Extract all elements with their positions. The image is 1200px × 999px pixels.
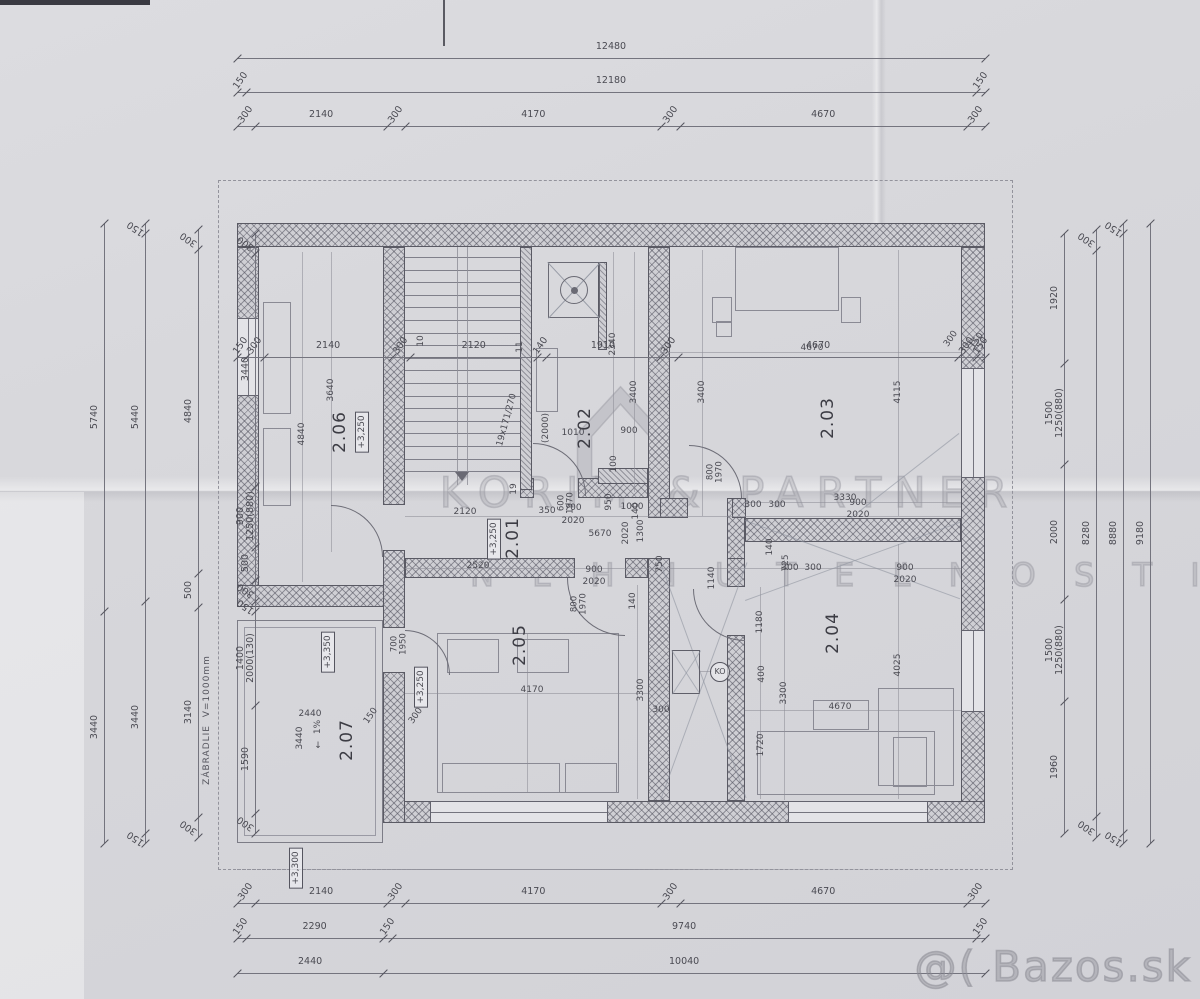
stair-tread (405, 370, 520, 371)
dim-label: 3440 (131, 705, 141, 729)
wall-stair-east (520, 247, 532, 490)
dim-label: 2140 (309, 887, 333, 897)
wall-202-inner-h (598, 468, 648, 484)
stair-tread (405, 270, 520, 271)
dim-label: 4170 (521, 887, 545, 897)
dim-label: 2120 (462, 341, 486, 351)
dim-label: 2140 (316, 341, 340, 351)
stair-tread (405, 396, 520, 397)
dim-label: 5440 (131, 405, 141, 429)
window-bottom-1 (430, 801, 608, 823)
label-3400: 3400 (697, 381, 707, 404)
label-2.03: 2.03 (818, 397, 838, 439)
corridor-dim-line-1 (405, 516, 961, 517)
label-1720: 1720 (756, 734, 766, 757)
stair-direction-arrow (455, 472, 469, 481)
label-4115: 4115 (893, 381, 903, 404)
label-4025: 4025 (893, 654, 903, 677)
label-1180: 1180 (755, 611, 765, 634)
vent-fan-hub (571, 287, 578, 294)
label-19: 19 (509, 483, 519, 494)
dim-line-202v (613, 252, 614, 460)
dim-label: 150 (232, 71, 251, 92)
dim-label: 900 1250(880) (236, 491, 256, 541)
label-900: 900 (585, 565, 602, 575)
label-+3300: +3,300 (289, 847, 303, 888)
label-+3250: +3,250 (414, 666, 428, 707)
label-100: 100 (609, 455, 619, 472)
label-900: 900 (849, 498, 866, 508)
label-ZBRADLIEV1000mm: ZÁBRADLIE V=1000mm (202, 655, 212, 785)
paper-pale-left (0, 492, 84, 999)
dim-line-202v2 (634, 252, 635, 492)
label-4670: 4670 (801, 343, 824, 353)
label-11: 11 (515, 341, 525, 352)
label-950: 950 (604, 493, 614, 510)
label-4840: 4840 (297, 423, 307, 446)
watermark-site: @( Bazos.sk (915, 942, 1192, 991)
dim-label: 10040 (669, 957, 699, 967)
fold-mark (443, 0, 445, 46)
label-3300: 3300 (636, 679, 646, 702)
nightstand-203-left (712, 297, 732, 323)
wall-exterior-top (237, 223, 985, 247)
label-8001970: 800 1970 (707, 461, 726, 483)
label-KO: KO (710, 662, 730, 682)
wall-a-mid (383, 550, 405, 628)
stair-tread (405, 282, 520, 283)
dim-label: 3140 (184, 700, 194, 724)
wall-a-lower (383, 672, 405, 823)
label-700: 700 (564, 503, 581, 513)
window-right-2 (961, 630, 985, 712)
bed-203 (735, 247, 839, 311)
label-900: 900 (896, 563, 913, 573)
dim-label: 4840 (184, 399, 194, 423)
label-2.05: 2.05 (510, 624, 530, 666)
label-1000: 1000 (621, 502, 644, 512)
stair-tread (405, 295, 520, 296)
label-2020: 2020 (621, 522, 631, 545)
dim-label: 2440 (298, 957, 322, 967)
dim-label: 4170 (521, 110, 545, 120)
wall-206-south (237, 585, 405, 607)
stair-tread (405, 408, 520, 409)
dim-label: 300 (237, 105, 256, 126)
label-2020: 2020 (847, 510, 870, 520)
label-4170: 4170 (521, 685, 544, 695)
wall-203-door-a (660, 498, 688, 518)
staircase (405, 247, 520, 485)
label-2020: 2020 (562, 516, 585, 526)
label-3400: 3400 (629, 381, 639, 404)
dim-label: 150 (971, 917, 990, 938)
stair-tread (405, 257, 520, 258)
stair-tread (405, 333, 520, 334)
wall-a-upper (383, 247, 405, 505)
label-300: 300 (804, 563, 821, 573)
dim-label: 300 (387, 105, 406, 126)
label-300: 300 (744, 500, 761, 510)
dim-label: 1960 (1050, 755, 1060, 779)
dim-label: 3440 (90, 715, 100, 739)
dim-label: 300 (387, 882, 406, 903)
label-7001950: 700 1950 (391, 633, 410, 655)
wall-205-east (648, 558, 670, 801)
dim-label: 8280 (1082, 521, 1092, 545)
wall-202-east (648, 247, 670, 518)
dim-label: 12480 (596, 42, 626, 52)
balcony-roof-dash (237, 836, 1013, 870)
dim-label: 8880 (1109, 521, 1119, 545)
dim-label: 9740 (672, 922, 696, 932)
stair-stringer-2 (467, 247, 468, 485)
dim-label: 4670 (811, 887, 835, 897)
stair-tread (405, 320, 520, 321)
wall-204-west-b (727, 635, 745, 801)
label-3300: 3300 (779, 682, 789, 705)
window-bottom-2 (788, 801, 928, 823)
label-300: 300 (768, 500, 785, 510)
label-: ↓ (314, 741, 322, 751)
dim-label: 300 (1077, 817, 1098, 836)
stair-tread (405, 307, 520, 308)
label-750: 750 (655, 555, 665, 572)
label-2020: 2020 (894, 575, 917, 585)
label-1010: 1010 (562, 428, 585, 438)
dim-label: 1400 2000(130) (236, 633, 256, 683)
stair-stringer-1 (457, 247, 458, 485)
dim-label: 300 (179, 230, 200, 249)
label-725: 725 (781, 554, 791, 571)
dim-label: 2000 (1050, 520, 1060, 544)
label-2.04: 2.04 (823, 612, 843, 654)
label-2440: 2440 (299, 709, 322, 719)
dim-label: 500 (184, 581, 194, 599)
label-2.07: 2.07 (337, 719, 357, 761)
stair-tread (405, 358, 520, 359)
label-2340: 2340 (608, 333, 618, 356)
label-10: 10 (416, 335, 426, 346)
window-right-1 (961, 368, 985, 478)
label-3440: 3440 (295, 727, 305, 750)
dim-label: 1500 1250(880) (1045, 625, 1065, 675)
dim-label: 1500 1250(880) (1045, 389, 1065, 439)
label-400: 400 (757, 665, 767, 682)
label-2.01: 2.01 (503, 517, 523, 559)
label-8001970: 800 1970 (571, 593, 590, 615)
label-900: 900 (620, 426, 637, 436)
dim-line-206a (302, 252, 303, 582)
stair-tread (405, 459, 520, 460)
floor-plan-photo: ⌂ KORIM & PARTNER N E H N U T E Ľ N O S … (0, 0, 1200, 999)
label-300: 300 (652, 705, 669, 715)
dim-label: 1920 (1050, 286, 1060, 310)
dim-label: 5740 (90, 405, 100, 429)
shelf-206-a (263, 302, 291, 414)
bench-205-a (442, 763, 560, 793)
pillow-204 (893, 737, 927, 787)
dim-label: 9180 (1136, 521, 1146, 545)
dim-label: 150 (971, 71, 990, 92)
dim-label: 4670 (811, 110, 835, 120)
dim-label: 150 (232, 917, 251, 938)
dim-label: 2140 (309, 110, 333, 120)
label-+3250: +3,250 (487, 518, 501, 559)
dim-label: 2290 (303, 922, 327, 932)
wall-203-south (745, 518, 961, 542)
label-1%: 1% (313, 720, 323, 734)
label-350: 350 (538, 506, 555, 516)
dim-label: 500 (241, 554, 251, 572)
label-2000: (2000) (541, 413, 551, 443)
label-+3250: +3,250 (355, 411, 369, 452)
dim-label: 300 (1077, 230, 1098, 249)
label-2120: 2120 (454, 507, 477, 517)
dim-label: 3440 (241, 357, 251, 381)
nightstand-203-right (841, 297, 861, 323)
bench-205-b (565, 763, 617, 793)
stair-tread (405, 383, 520, 384)
label-1140: 1140 (707, 567, 717, 590)
dim-label: 1590 (241, 747, 251, 771)
label-2520: 2520 (467, 561, 490, 571)
dim-label: 300 (237, 882, 256, 903)
dim-label: 12180 (596, 76, 626, 86)
label-5670: 5670 (589, 529, 612, 539)
label-2.06: 2.06 (330, 411, 350, 453)
pillow-205-left (447, 639, 499, 673)
label-3640: 3640 (326, 379, 336, 402)
label-140: 140 (765, 538, 775, 555)
label-+3350: +3,350 (321, 631, 335, 672)
label-1300: 1300 (636, 520, 646, 543)
stool-203 (716, 321, 732, 337)
paper-top-edge (0, 0, 150, 5)
label-2020: 2020 (583, 577, 606, 587)
label-4670: 4670 (829, 702, 852, 712)
label-140: 140 (628, 592, 638, 609)
shelf-206-b (263, 428, 291, 506)
